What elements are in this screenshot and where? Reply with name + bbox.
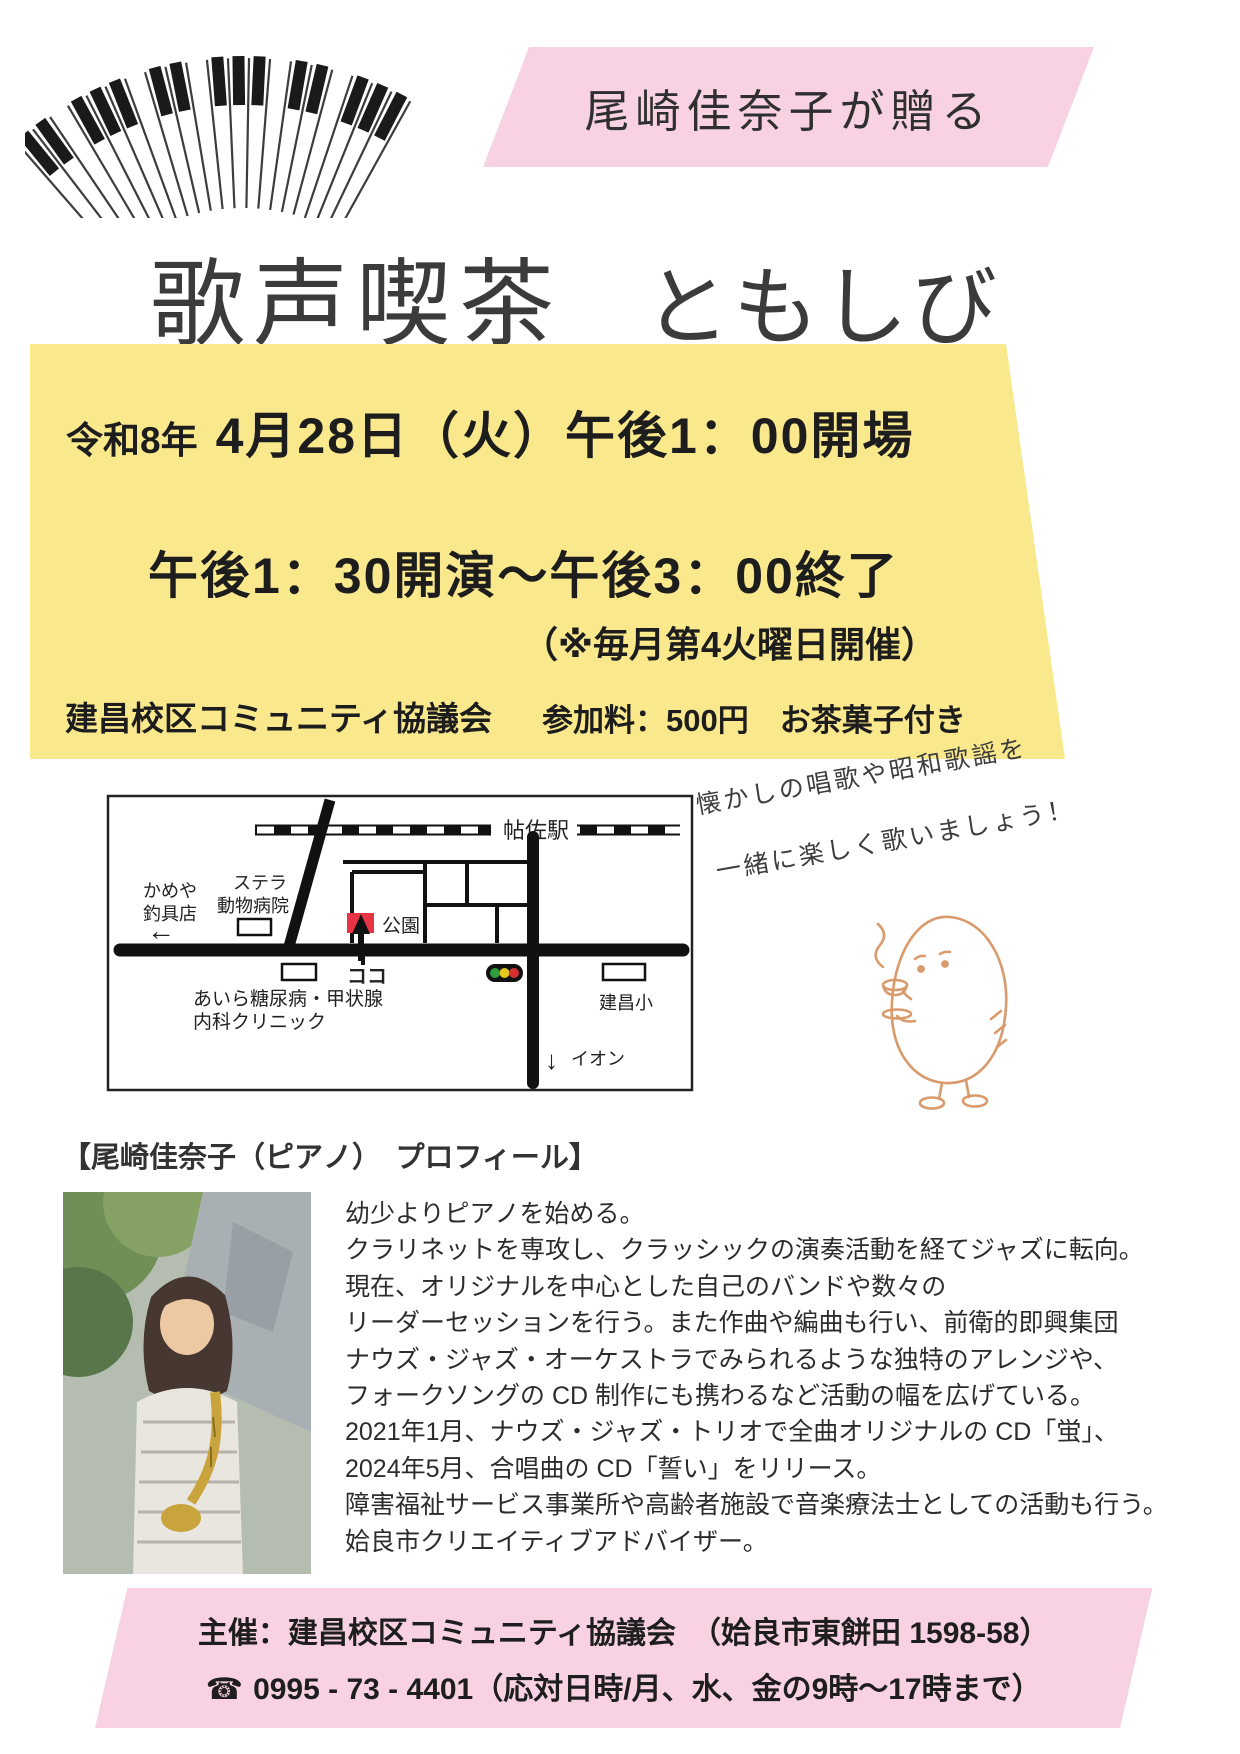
event-date-line: 令和8年4月28日（火）午後1：00開場	[66, 396, 914, 468]
event-details-box: 令和8年4月28日（火）午後1：00開場 午後1：30開演～午後3：00終了 （…	[30, 344, 1065, 759]
footer-organizer-line: 主催：建昌校区コミュニティ協議会 （姶良市東餅田 1598-58）	[198, 1608, 1050, 1652]
event-fee: 参加料：500円 お茶菓子付き	[542, 695, 966, 740]
map-label-clinic-1: あいら糖尿病・甲状腺	[193, 988, 383, 1010]
map-label-shop-1: かめや	[143, 881, 197, 901]
piano-keys-illustration	[25, 48, 455, 218]
flyer-page: 尾崎佳奈子が贈る 歌声喫茶ともしび 令和8年4月28日（火）午後1：00開場 午…	[0, 0, 1240, 1754]
footer-banner: 主催：建昌校区コミュニティ協議会 （姶良市東餅田 1598-58） ☎0995 …	[95, 1588, 1152, 1728]
title-main: 歌声喫茶	[150, 252, 562, 358]
steam-squiggle	[876, 924, 884, 967]
footer-phone-text: 0995 - 73 - 4401（応対日時/月、水、金の9時～17時まで）	[253, 1673, 1042, 1706]
down-arrow-icon: ↓	[545, 1045, 558, 1075]
profile-line: 2021年1月、ナウズ・ジャズ・トリオで全曲オリジナルの CD「蛍」、	[345, 1414, 1160, 1450]
event-date: 4月28日（火）午後1：00開場	[216, 408, 915, 464]
profile-line: 姶良市クリエイティブアドバイザー。	[345, 1524, 1160, 1560]
traffic-light-icon	[486, 964, 523, 982]
profile-line: ナウズ・ジャズ・オーケストラでみられるような独特のアレンジや、	[345, 1342, 1160, 1378]
profile-line: クラリネットを専攻し、クラッシックの演奏活動を経てジャズに転向。	[345, 1232, 1160, 1268]
event-organizer: 建昌校区コミュニティ協議会	[65, 692, 492, 740]
presenter-banner: 尾崎佳奈子が贈る	[483, 47, 1094, 167]
left-arrow-icon: ←	[147, 915, 175, 946]
profile-heading: 【尾崎佳奈子（ピアノ） プロフィール】	[62, 1134, 598, 1176]
map-border	[108, 796, 692, 1090]
map-label-vet-1: ステラ	[233, 873, 287, 893]
event-note: （※毎月第4火曜日開催）	[522, 616, 937, 668]
profile-line: 幼少よりピアノを始める。	[345, 1196, 1160, 1232]
map-building-vet	[238, 919, 271, 935]
map-label-clinic-2: 内科クリニック	[193, 1011, 326, 1033]
profile-photo	[63, 1192, 311, 1574]
presenter-banner-text: 尾崎佳奈子が贈る	[585, 75, 993, 140]
profile-line: 現在、オリジナルを中心とした自己のバンドや数々の	[345, 1269, 1160, 1305]
map-label-school: 建昌小	[599, 993, 653, 1013]
title-sub: ともしび	[644, 260, 1000, 356]
event-time-line: 午後1：30開演～午後3：00終了	[148, 536, 899, 608]
map-building-clinic	[282, 964, 316, 980]
map-label-vet-2: 動物病院	[217, 896, 289, 916]
map-building-school	[603, 964, 645, 980]
profile-line: フォークソングの CD 制作にも携わるなど活動の幅を広げている。	[345, 1378, 1160, 1414]
map-label-here: ココ	[347, 966, 387, 988]
profile-text-block: 幼少よりピアノを始める。 クラリネットを専攻し、クラッシックの演奏活動を経てジャ…	[345, 1196, 1160, 1560]
map-label-aeon: イオン	[571, 1049, 625, 1069]
footer-phone-line: ☎0995 - 73 - 4401（応対日時/月、水、金の9時～17時まで）	[206, 1664, 1042, 1708]
profile-line: 2024年5月、合唱曲の CD「誓い」をリリース。	[345, 1451, 1160, 1487]
egg-mascot-illustration	[845, 893, 1030, 1113]
access-map: 帖佐駅 かめや 釣具店 ← ステラ 動物病院 公園 ココ	[105, 793, 695, 1093]
event-era: 令和8年	[66, 420, 198, 461]
map-label-park: 公園	[382, 916, 420, 937]
profile-line: 障害福祉サービス事業所や高齢者施設で音楽療法士としての活動も行う。	[345, 1487, 1160, 1523]
profile-line: リーダーセッションを行う。また作曲や編曲も行い、前衛的即興集団	[345, 1305, 1160, 1341]
phone-icon: ☎	[206, 1673, 243, 1706]
